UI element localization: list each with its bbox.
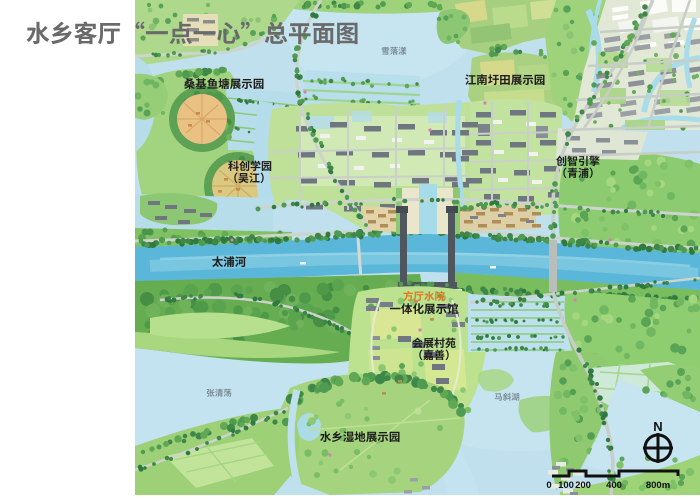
svg-text:800m: 800m — [646, 480, 670, 491]
svg-text:100: 100 — [558, 480, 574, 491]
svg-text:0: 0 — [546, 480, 551, 491]
svg-text:N: N — [653, 419, 662, 434]
svg-text:200: 200 — [575, 480, 591, 491]
svg-text:400: 400 — [606, 480, 622, 491]
